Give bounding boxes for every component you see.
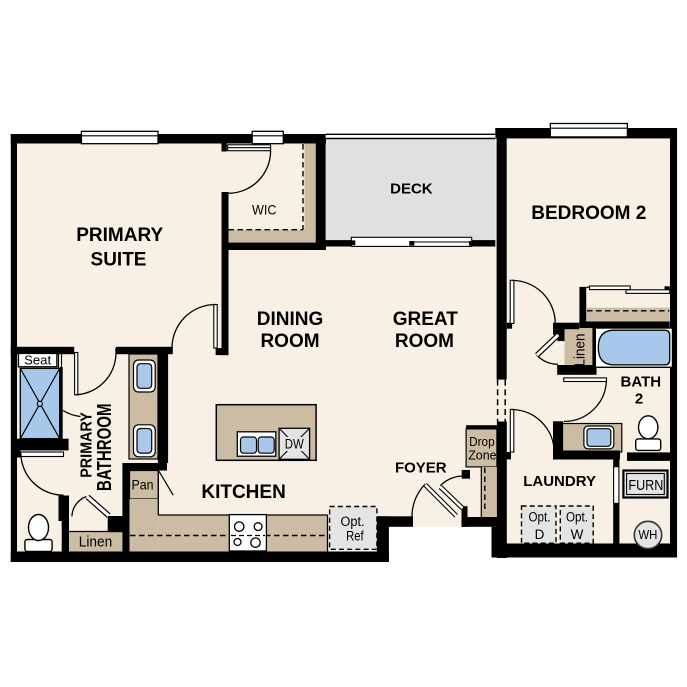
svg-text:DW: DW <box>285 436 304 451</box>
svg-text:KITCHEN: KITCHEN <box>201 482 285 503</box>
svg-text:Linen: Linen <box>573 334 589 367</box>
svg-text:Opt.: Opt. <box>529 510 551 525</box>
svg-text:WH: WH <box>638 528 657 542</box>
svg-text:Linen: Linen <box>79 535 113 551</box>
svg-text:LAUNDRY: LAUNDRY <box>523 473 596 490</box>
svg-text:ROOM: ROOM <box>395 331 454 352</box>
svg-text:2: 2 <box>635 391 643 408</box>
svg-text:DINING: DINING <box>257 309 324 330</box>
svg-text:DECK: DECK <box>390 181 433 198</box>
svg-text:Zone: Zone <box>468 447 496 462</box>
svg-text:SUITE: SUITE <box>91 250 147 271</box>
svg-text:BEDROOM 2: BEDROOM 2 <box>531 203 646 224</box>
svg-text:Ref: Ref <box>346 529 364 544</box>
svg-text:Seat: Seat <box>24 352 51 367</box>
svg-text:WIC: WIC <box>252 202 277 218</box>
svg-text:FURN: FURN <box>628 478 663 494</box>
svg-text:Opt.: Opt. <box>566 510 588 525</box>
svg-text:GREAT: GREAT <box>393 309 458 330</box>
svg-text:BATH: BATH <box>621 373 662 390</box>
svg-text:Pan: Pan <box>132 477 154 493</box>
svg-text:FOYER: FOYER <box>395 459 447 476</box>
svg-text:ROOM: ROOM <box>260 331 319 352</box>
svg-text:W: W <box>571 527 584 542</box>
svg-text:BATHROOM: BATHROOM <box>94 403 116 491</box>
svg-text:Opt.: Opt. <box>341 514 365 529</box>
svg-text:D: D <box>535 527 545 542</box>
svg-text:PRIMARY: PRIMARY <box>76 225 163 246</box>
